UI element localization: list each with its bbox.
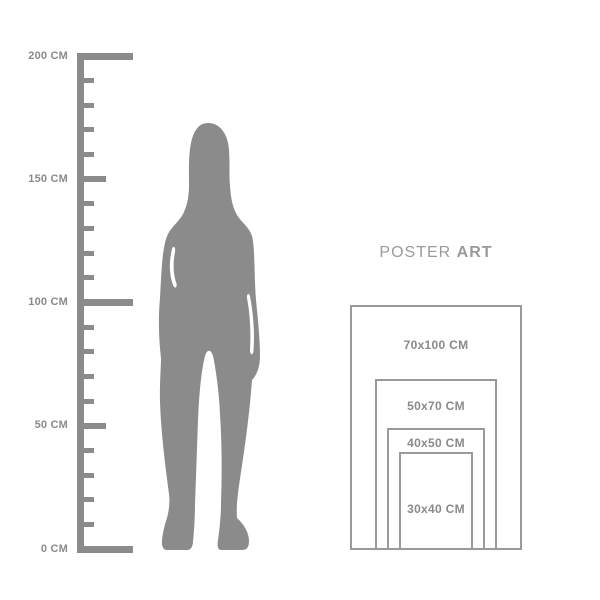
ruler-tick: [84, 325, 94, 330]
poster-size-label: 40x50 CM: [366, 436, 506, 450]
ruler-tick: [84, 374, 94, 379]
ruler-tick: [84, 226, 94, 231]
poster-title-regular: POSTER: [379, 244, 451, 261]
ruler-tick: [84, 399, 94, 404]
ruler-tick: [84, 349, 94, 354]
ruler-tick-label: 200 CM: [0, 50, 68, 63]
ruler-tick-label: 100 CM: [0, 296, 68, 309]
ruler-tick-label: 50 CM: [0, 419, 68, 432]
poster-size-label: 70x100 CM: [366, 338, 506, 352]
ruler-tick: [84, 473, 94, 478]
woman-silhouette: [150, 122, 270, 551]
ruler-tick: [84, 299, 133, 306]
poster-size-guide-diagram: 200 CM150 CM100 CM50 CM0 CM POSTER ART 7…: [0, 0, 600, 600]
ruler-tick-label: 0 CM: [0, 543, 68, 556]
ruler-tick: [84, 103, 94, 108]
ruler-tick: [84, 275, 94, 280]
ruler-tick: [84, 127, 94, 132]
ruler-tick: [84, 53, 133, 60]
ruler-tick: [84, 546, 133, 553]
ruler-tick: [84, 522, 94, 527]
ruler-tick: [84, 78, 94, 83]
ruler-tick: [84, 497, 94, 502]
ruler-tick: [84, 448, 94, 453]
ruler-tick-label: 150 CM: [0, 173, 68, 186]
ruler-tick: [84, 423, 106, 429]
ruler-tick: [84, 201, 94, 206]
poster-title-bold: ART: [457, 244, 493, 261]
ruler-bar: [77, 53, 84, 553]
poster-size-label: 30x40 CM: [366, 502, 506, 516]
ruler-tick: [84, 152, 94, 157]
ruler-tick: [84, 251, 94, 256]
poster-art-title: POSTER ART: [336, 244, 536, 262]
poster-size-label: 50x70 CM: [366, 399, 506, 413]
ruler-tick: [84, 176, 106, 182]
